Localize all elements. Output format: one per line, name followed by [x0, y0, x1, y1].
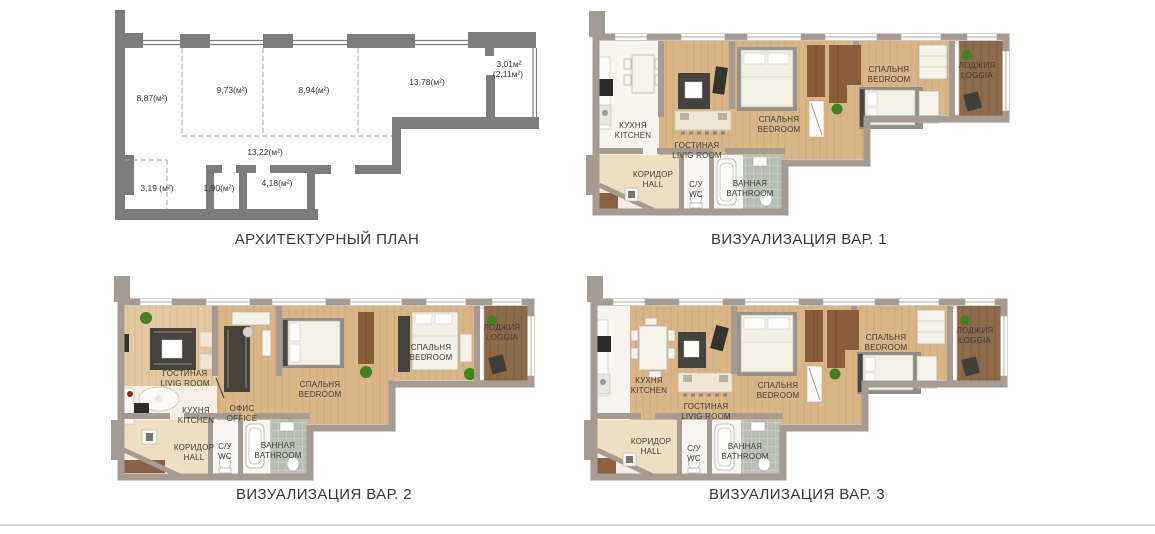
bathroom-sink	[280, 422, 294, 431]
hall-wc-wall	[679, 153, 684, 210]
living-bedroom-wall	[731, 306, 737, 374]
plant	[360, 366, 372, 378]
office-label-ru: ОФИС	[230, 404, 255, 413]
plant	[832, 104, 843, 115]
office-label-en: OFFICE	[227, 414, 258, 423]
bedroom-label-en: BEDROOM	[757, 391, 800, 400]
living-rug	[678, 332, 706, 368]
kettle	[127, 391, 133, 397]
vent-block	[586, 155, 599, 195]
washing-machine	[623, 453, 636, 466]
bedroom2-label-en: BEDROOM	[868, 75, 911, 84]
bed-center	[737, 47, 797, 111]
architectural-plan: 8,87(м²) 9,73(м²) 8,94(м²) 13,78(м²) 3,0…	[115, 5, 539, 227]
office-bedroom-wall	[276, 306, 282, 376]
loggia-wall	[949, 41, 955, 119]
living-rug	[150, 328, 196, 370]
hall-label-en: HALL	[643, 180, 664, 189]
architectural-plan-title: АРХИТЕКТУРНЫЙ ПЛАН	[115, 231, 539, 248]
door-leaf	[809, 101, 824, 137]
bedroom-label-en: BEDROOM	[299, 390, 342, 399]
washing-machine	[625, 188, 638, 201]
living-label-ru: ГОСТИНАЯ	[684, 402, 729, 411]
corner-mat	[596, 458, 616, 474]
kitchen-label-ru: КУХНЯ	[635, 376, 663, 385]
bedroom-label-ru: СПАЛЬНЯ	[300, 380, 341, 389]
kitchen-label-en: KITCHEN	[178, 416, 215, 425]
visualization-2-plan: ГОСТИНАЯ LIVIG ROOM КУХНЯ KITCHEN ОФИС O…	[110, 270, 538, 484]
wc-label-ru: С/У	[687, 444, 701, 453]
coffee-table	[685, 82, 702, 98]
visualization-2-title: ВИЗУАЛИЗАЦИЯ ВАР. 2	[110, 486, 538, 503]
hall-label-en: HALL	[184, 453, 205, 462]
vent-block	[111, 420, 124, 460]
kitchen-label-ru: КУХНЯ	[182, 406, 210, 415]
sofa	[678, 373, 732, 392]
bedroom2-label-en: BEDROOM	[865, 343, 908, 352]
visualization-1-title: ВИЗУАЛИЗАЦИЯ ВАР. 1	[585, 231, 1013, 248]
bottom-divider-line	[0, 524, 1155, 526]
bed-center	[282, 318, 344, 368]
bedroom2-label-en: BEDROOM	[410, 353, 453, 362]
living-label-ru: ГОСТИНАЯ	[163, 369, 208, 378]
armchair	[200, 354, 212, 369]
bedroom2-label-ru: СПАЛЬНЯ	[866, 333, 907, 342]
visualization-3-title: ВИЗУАЛИЗАЦИЯ ВАР. 3	[583, 486, 1011, 503]
bedroom-label-en: BEDROOM	[758, 125, 801, 134]
wc-label-ru: С/У	[218, 442, 232, 451]
wc-bath-wall	[709, 153, 714, 210]
kitchen-label-en: KITCHEN	[631, 386, 668, 395]
hall-label-ru: КОРИДОР	[174, 443, 214, 452]
kitchen-living-wall	[658, 41, 664, 117]
living-label-ru: ГОСТИНАЯ	[675, 141, 720, 150]
loggia-label-ru: ЛОДЖИЯ	[959, 61, 996, 70]
shelf	[262, 330, 271, 356]
area-room-left: 8,87(м²)	[137, 93, 168, 103]
stove	[596, 336, 611, 352]
corner-block	[114, 276, 130, 302]
visualization-1-plan: КУХНЯ KITCHEN ГОСТИНАЯ LIVIG ROOM СПАЛЬН…	[585, 5, 1013, 219]
armchair	[200, 332, 212, 347]
kitchen-label-en: KITCHEN	[615, 131, 652, 140]
bedroom-label-ru: СПАЛЬНЯ	[759, 115, 800, 124]
bathroom-sink	[753, 157, 767, 166]
bathroom-sink	[751, 422, 765, 431]
living-label-en: LIVIG ROOM	[672, 151, 722, 160]
wc-label-ru: С/У	[689, 180, 703, 189]
living-bedroom-wall	[729, 41, 735, 109]
area-room-2: 9,73(м²)	[217, 85, 248, 95]
office-chair	[243, 327, 253, 337]
wc-bath-wall	[238, 418, 243, 475]
area-room-right: 13,78(м²)	[409, 77, 445, 87]
area-bathroom: 4,18(м²)	[262, 178, 293, 188]
bed-center	[737, 312, 797, 376]
area-loggia-full: 3,01м²	[496, 59, 521, 69]
corner-mat	[598, 193, 618, 209]
plant	[962, 50, 972, 60]
bed-right	[398, 312, 458, 372]
loggia-label-ru: ЛОДЖИЯ	[957, 326, 994, 335]
floor-plan-sheet: 8,87(м²) 9,73(м²) 8,94(м²) 13,78(м²) 3,0…	[0, 0, 1155, 534]
bathroom-label-ru: ВАННАЯ	[733, 179, 767, 188]
living-rug	[678, 73, 710, 109]
wardrobe	[845, 310, 859, 350]
living-label-en: LIVIG ROOM	[160, 379, 210, 388]
loggia-label-en: LOGGIA	[961, 71, 993, 80]
arch-walls	[115, 10, 539, 220]
loggia-wall	[947, 306, 953, 384]
hall-label-ru: КОРИДОР	[633, 170, 673, 179]
loggia-label-ru: ЛОДЖИЯ	[484, 323, 521, 332]
plant	[960, 315, 970, 325]
coffee-table	[162, 340, 182, 358]
bathroom-label-ru: ВАННАЯ	[261, 441, 295, 450]
tv	[124, 334, 129, 352]
bathroom-label-en: BATHROOM	[726, 189, 773, 198]
bathroom-label-en: BATHROOM	[721, 452, 768, 461]
corner-block	[587, 276, 603, 302]
bathroom-label-en: BATHROOM	[254, 451, 301, 460]
kitchen-label-ru: КУХНЯ	[619, 121, 647, 130]
bathroom-label-ru: ВАННАЯ	[728, 442, 762, 451]
area-room-3: 8,94(м²)	[299, 85, 330, 95]
living-label-en: LIVIG ROOM	[681, 412, 731, 421]
washing-machine	[142, 430, 157, 444]
dresser	[460, 334, 472, 362]
area-corridor: 13,22(м²)	[247, 147, 283, 157]
plant	[830, 369, 841, 380]
visualization-3-plan: КУХНЯ KITCHEN ГОСТИНАЯ LIVIG ROOM СПАЛЬН…	[583, 270, 1011, 484]
living-office-wall	[212, 306, 218, 376]
hall-label-ru: КОРИДОР	[631, 437, 671, 446]
wc-label-en: WC	[689, 190, 703, 199]
loggia-label-en: LOGGIA	[486, 333, 518, 342]
wc-label-en: WC	[687, 454, 701, 463]
bedroom2-label-ru: СПАЛЬНЯ	[411, 343, 452, 352]
door-leaf	[807, 366, 822, 402]
plant	[140, 312, 152, 324]
wardrobe	[847, 45, 861, 85]
coffee-table	[684, 341, 699, 357]
area-wc: 1,90(м²)	[204, 183, 235, 193]
wc-label-en: WC	[218, 452, 232, 461]
area-niche: 3,19 (м²)	[140, 183, 173, 193]
wc-bath-wall	[707, 418, 712, 475]
area-loggia-coef: (2,11м²)	[493, 69, 523, 79]
bedroom2-label-ru: СПАЛЬНЯ	[869, 65, 910, 74]
stove	[598, 79, 613, 96]
hall-wc-wall	[677, 418, 682, 475]
loggia-wall	[474, 306, 480, 384]
sofa	[675, 111, 731, 130]
hall-label-en: HALL	[641, 447, 662, 456]
loggia-label-en: LOGGIA	[959, 336, 991, 345]
bedroom-label-ru: СПАЛЬНЯ	[758, 381, 799, 390]
vent-block	[584, 420, 597, 460]
corner-block	[589, 11, 605, 37]
